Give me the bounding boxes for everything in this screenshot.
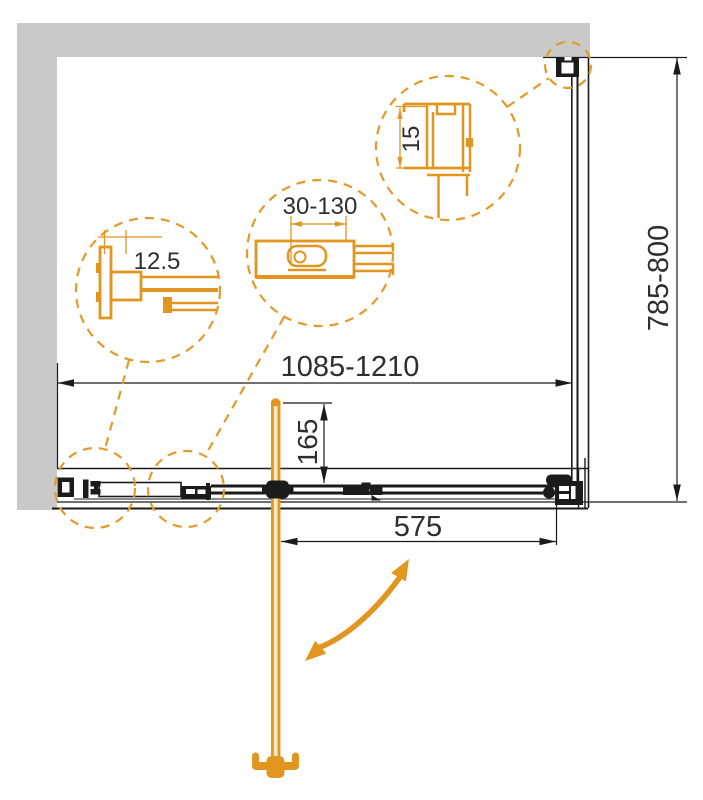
dimension-handle-offset: 165 bbox=[283, 403, 332, 483]
dimension-label-width: 1085-1210 bbox=[281, 351, 420, 383]
dimension-width: 1085-1210 bbox=[58, 351, 573, 387]
leader-line-right bbox=[507, 78, 549, 107]
arrow-right-icon bbox=[540, 538, 557, 546]
dimension-depth: 785-800 bbox=[643, 58, 681, 501]
wall-profile-top-right bbox=[556, 57, 579, 77]
enclosure-frame bbox=[58, 57, 688, 508]
detail-callouts bbox=[55, 42, 591, 528]
detail-profile-right: 15 bbox=[396, 104, 473, 218]
arrow-up-icon bbox=[673, 58, 681, 75]
arrow-down-icon bbox=[320, 467, 328, 484]
dimension-door-width: 575 bbox=[281, 500, 557, 545]
detail-label-middle: 30-130 bbox=[283, 193, 358, 220]
detail-profile-middle: 30-130 bbox=[256, 193, 393, 277]
left-wall-profile bbox=[58, 478, 75, 498]
wall-left bbox=[17, 23, 57, 510]
arrow-up-icon bbox=[320, 404, 328, 421]
fixed-panel-lines bbox=[572, 77, 578, 502]
rail-hardware bbox=[58, 475, 584, 506]
shower-enclosure-top-view: 1085-1210 785-800 575 165 bbox=[0, 0, 703, 800]
handle-cap bbox=[271, 398, 280, 406]
arrow-left-icon bbox=[281, 538, 298, 546]
dimension-label-handle-offset: 165 bbox=[292, 419, 323, 466]
door-swing-arrow bbox=[305, 559, 409, 661]
wall-top bbox=[17, 23, 590, 57]
door-knob bbox=[262, 481, 294, 499]
detail-label-right: 15 bbox=[398, 126, 425, 153]
detail-label-left: 12.5 bbox=[134, 248, 181, 275]
dimension-label-depth: 785-800 bbox=[643, 225, 675, 331]
dimension-label-door-width: 575 bbox=[394, 511, 442, 543]
technical-drawing-page: 1085-1210 785-800 575 165 bbox=[0, 0, 703, 800]
glass-clamp bbox=[83, 480, 101, 499]
detail-profile-left: 12.5 bbox=[96, 230, 218, 318]
fixed-glass-frame bbox=[99, 483, 181, 497]
connector-block bbox=[181, 483, 211, 500]
arrow-down-icon bbox=[673, 485, 681, 502]
leader-line-left bbox=[105, 360, 129, 449]
handle-bracket bbox=[252, 753, 299, 779]
arrow-left-icon bbox=[58, 379, 75, 387]
arrow-right-icon bbox=[556, 379, 573, 387]
